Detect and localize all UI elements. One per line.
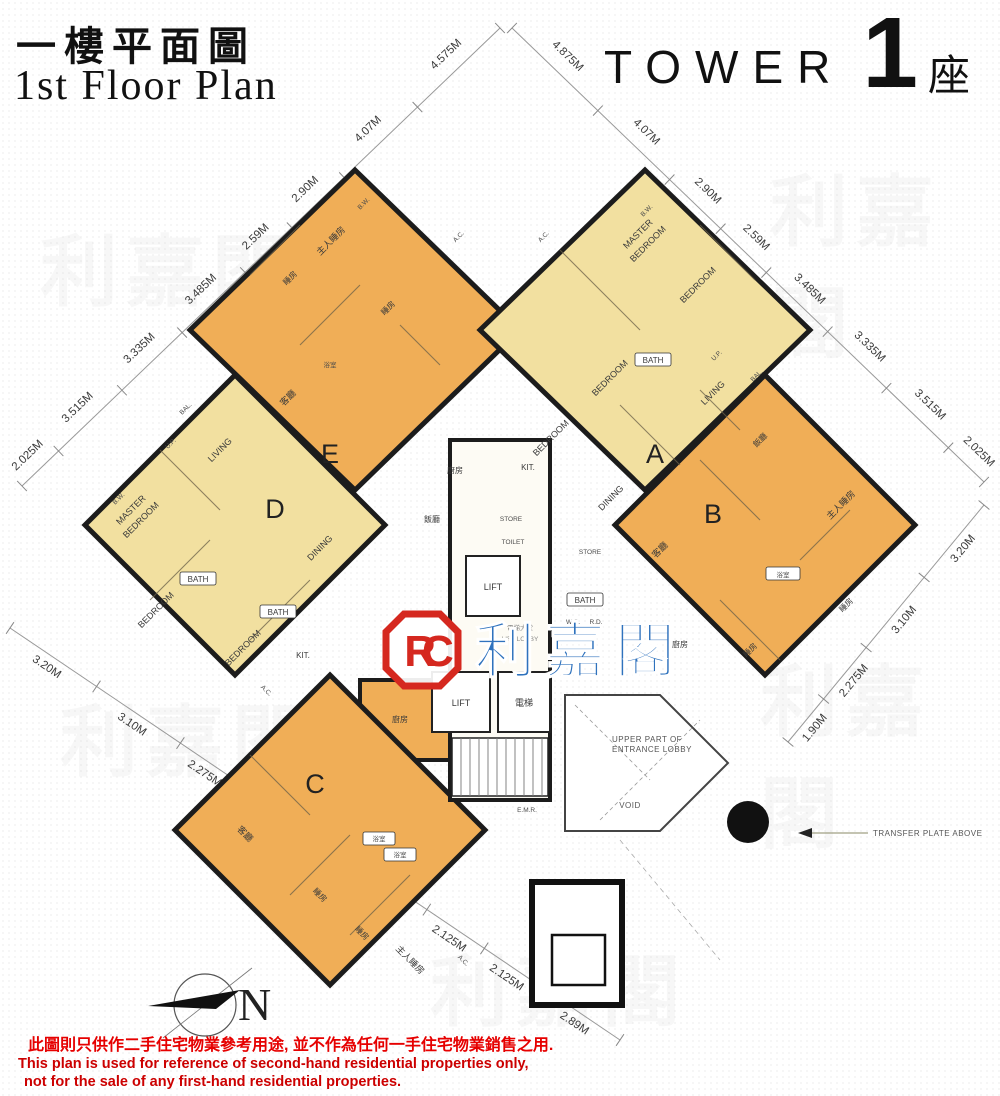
ac-label: A.C. [452,230,466,244]
unit-e-letter: E [321,439,339,469]
stairs [452,738,548,796]
room-label: BATH [188,575,209,584]
dimension-tick [861,643,872,652]
ac-label: A.C. [259,684,273,698]
room-label: STORE [579,549,602,556]
unit-d-letter: D [265,494,285,524]
north-label: N [238,979,271,1030]
dimension-tick [6,622,14,634]
room-label: 飯廳 [424,514,440,524]
dimension-label: 1.90M [800,712,830,744]
dimension-tick [480,943,488,955]
core-store-label: STORE [500,516,523,523]
dimension-label: 2.59M [740,222,771,253]
dimension-label: 2.90M [692,176,723,207]
transfer-plate-note: TRANSFER PLATE ABOVE [727,801,982,843]
dimension-tick [93,681,101,693]
dimension-label: 3.20M [948,533,978,565]
dimension-tick [979,501,990,510]
emr-label: E.M.R. [517,807,537,814]
room-label: 主人睡房 [394,943,427,976]
dimension-tick [919,573,930,582]
disclaimer-en2: not for the sale of any first-hand resid… [24,1074,1000,1090]
north-arrow: N [148,968,271,1038]
room-label: KIT. [521,463,535,472]
disclaimer: 此圖則只供作二手住宅物業參考用途, 並不作為任何一手住宅物業銷售之用. This… [0,1031,1000,1096]
room-label: BATH [268,608,289,617]
room-label: DINING [596,483,625,512]
room-label: BAL. [178,401,193,416]
service-shaft [532,882,622,1005]
room-label: 廚房 [392,714,408,724]
dimension-label: 2.90M [290,174,321,205]
room-label: BATH [643,356,664,365]
dimension-label: 2.125M [430,923,469,954]
dimension-tick [783,738,794,747]
disclaimer-zh: 此圖則只供作二手住宅物業參考用途, 並不作為任何一手住宅物業銷售之用. [28,1031,1000,1055]
north-needle [148,990,240,1009]
lift2-label: LIFT [452,698,471,708]
dimension-label: 2.275M [837,662,871,699]
lift1-label: LIFT [484,582,503,592]
lift3-label-zh: 電梯 [515,697,533,708]
disclaimer-en1: This plan is used for reference of secon… [18,1056,1000,1072]
dimension-tick [818,695,829,704]
dimension-label: 3.10M [115,711,148,739]
room-label: KIT. [296,651,310,660]
void-label: VOID [619,801,641,810]
entrance-lobby-label2: ENTRANCE LOBBY [612,745,692,754]
brand-name: 利嘉閣 [475,618,685,685]
brand-logo: RC 利嘉閣 [386,614,685,686]
room-label: BATH [575,596,596,605]
room-label: 浴室 [777,570,791,579]
dimension-label: 3.10M [890,604,920,636]
column [727,801,769,843]
room-label: 浴室 [324,360,338,369]
transfer-plate-label: TRANSFER PLATE ABOVE [873,829,982,838]
dimension-tick [177,737,185,749]
room-label: 浴室 [373,834,387,843]
ac-label: A.C. [456,954,470,968]
dimension-label: 2.125M [487,962,526,993]
unit-a-letter: A [646,439,664,469]
ac-label: A.C. [537,230,551,244]
room-label: 廚房 [447,465,463,475]
dimension-label: 3.20M [30,653,63,681]
entrance-lobby-label: UPPER PART OF [612,735,682,744]
dimension-tick [423,904,431,916]
floor-plan: 4.575M4.07M2.90M2.59M3.485M3.335M3.515M2… [0,0,1000,1096]
unit-c-letter: C [305,769,325,799]
dimension-label: 4.07M [353,114,384,145]
unit-b-letter: B [704,499,722,529]
room-label: 浴室 [394,850,408,859]
dimension-label: 4.07M [631,117,662,148]
dimension-label: 2.59M [240,222,271,253]
core-toilet-label: TOILET [502,539,525,546]
